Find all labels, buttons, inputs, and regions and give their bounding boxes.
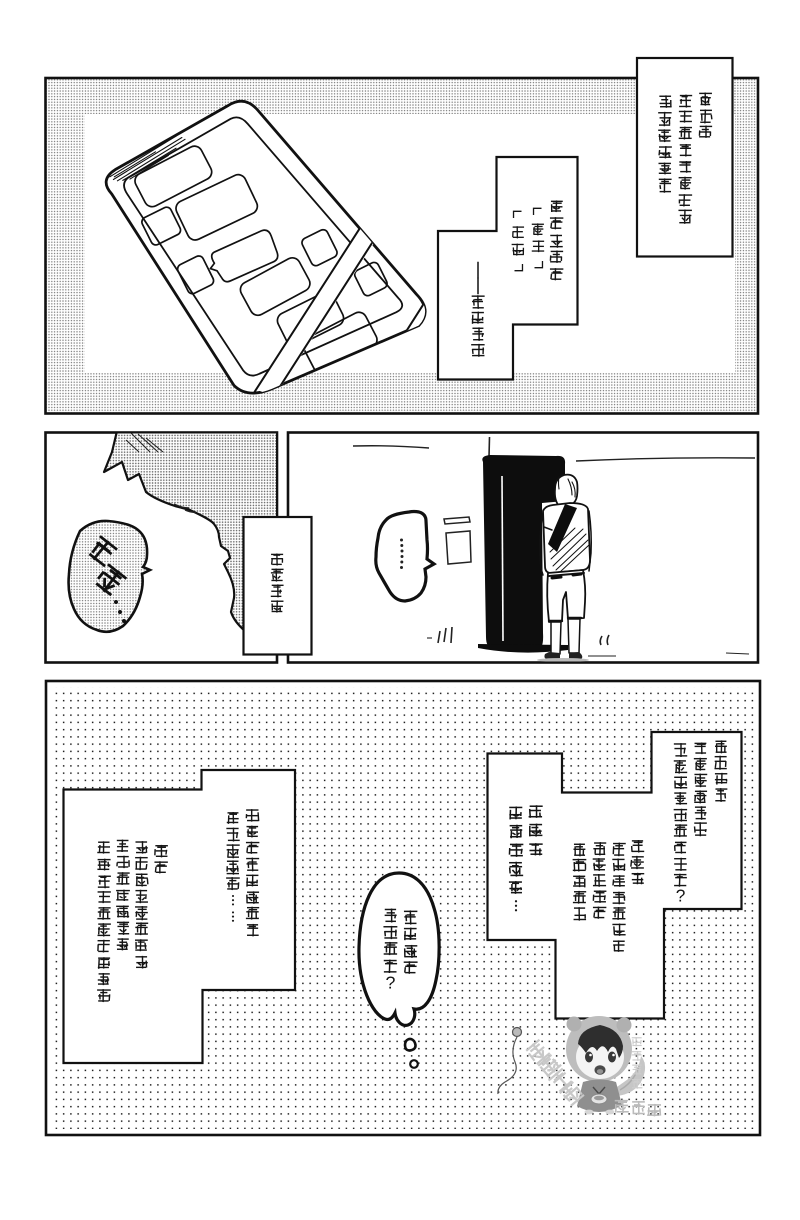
svg-text:?: ?: [386, 972, 396, 992]
svg-text:?: ?: [676, 886, 686, 906]
